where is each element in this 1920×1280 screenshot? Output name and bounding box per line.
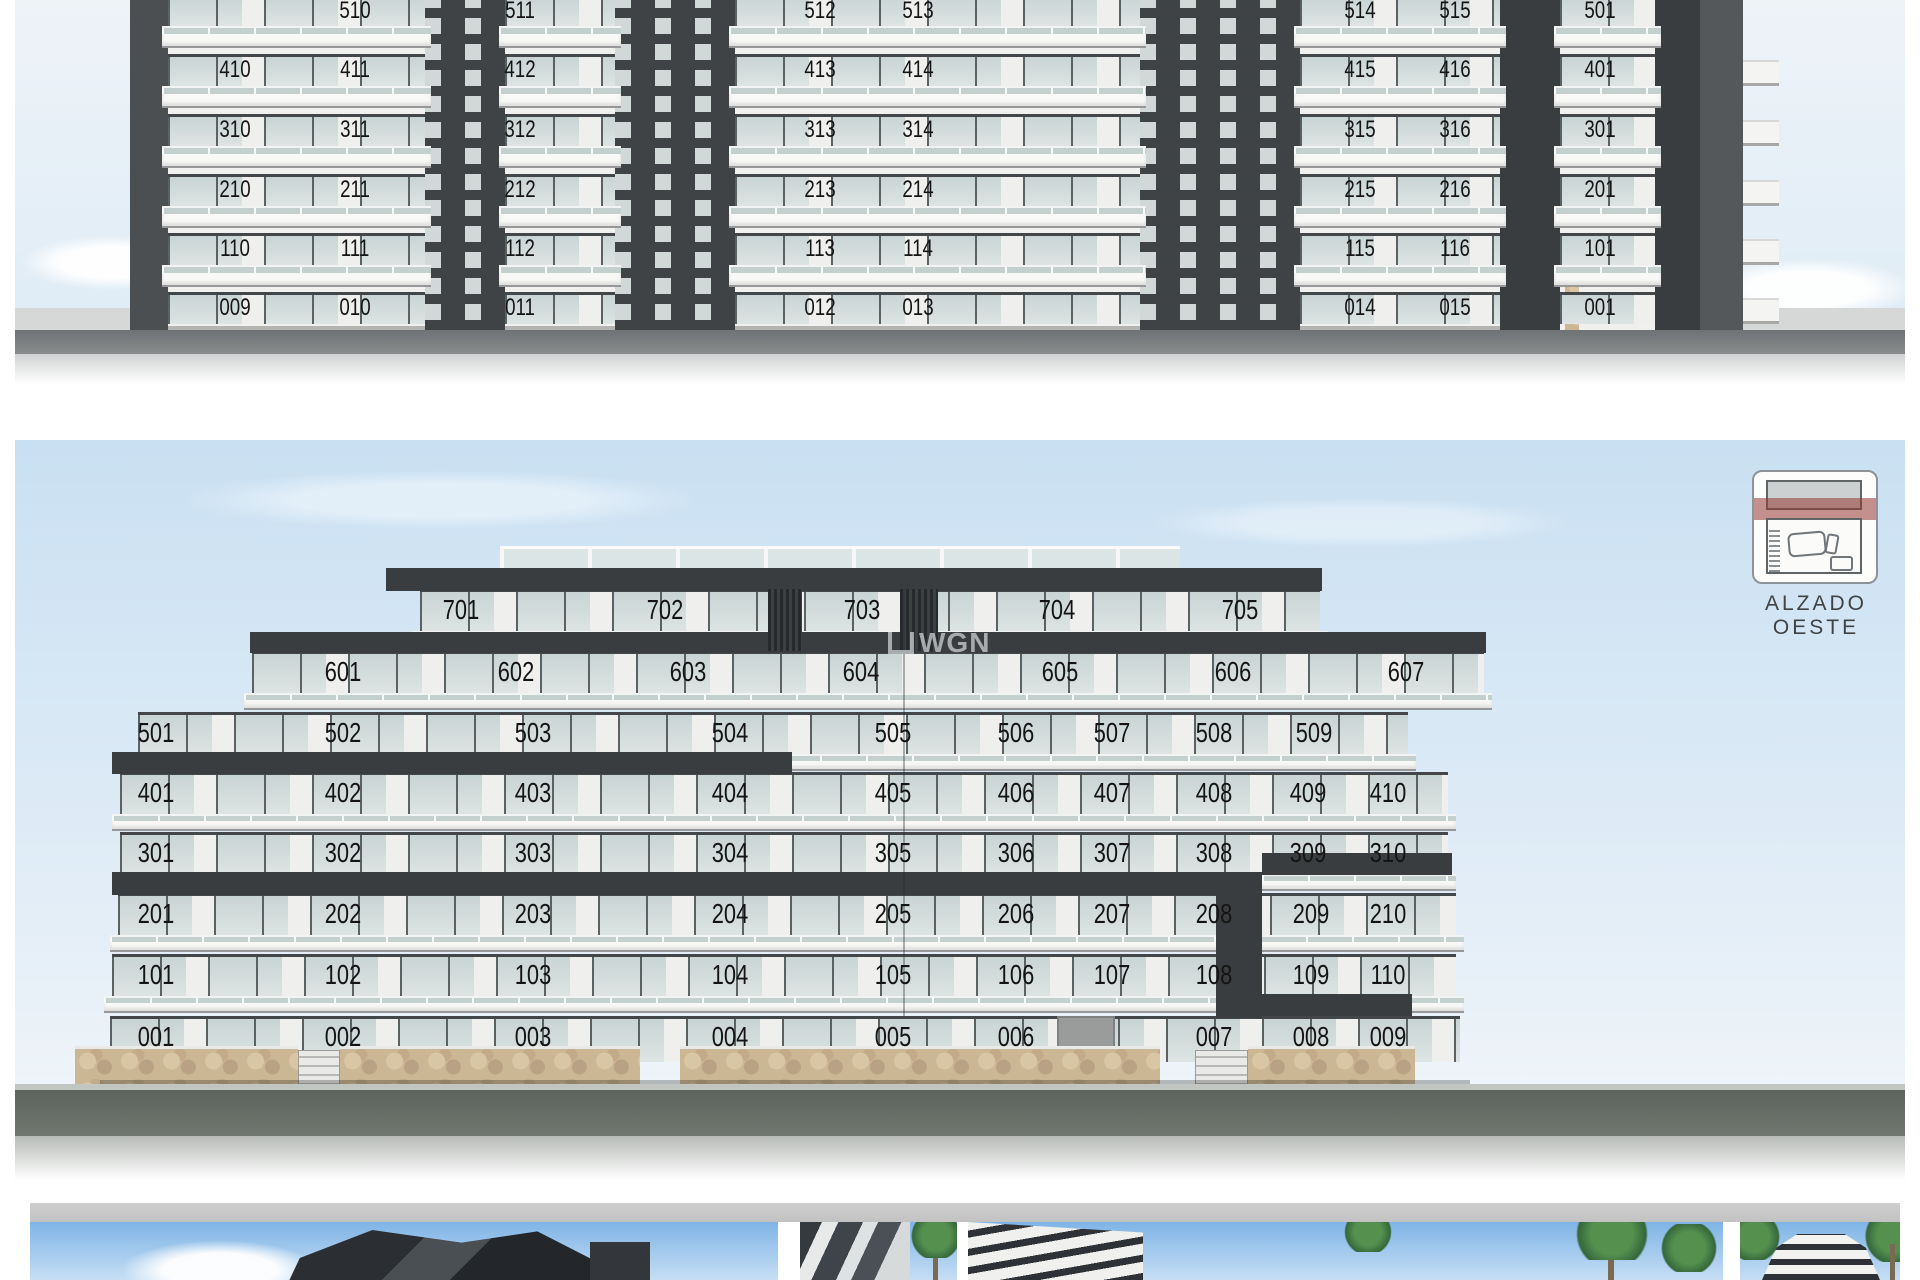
balcony-slab xyxy=(729,94,1146,108)
unit-label: 513 xyxy=(902,0,933,25)
balcony-slab xyxy=(162,154,431,168)
unit-label: 008 xyxy=(1293,1021,1329,1053)
window-band xyxy=(120,832,1448,874)
unit-label: 315 xyxy=(1344,116,1375,144)
balcony-slab xyxy=(729,34,1146,48)
unit-label: 216 xyxy=(1439,176,1470,204)
unit-label: 411 xyxy=(340,56,370,84)
unit-label: 702 xyxy=(647,594,683,626)
building-render-thumbnail-3[interactable] xyxy=(968,1222,1723,1280)
unit-label: 210 xyxy=(1370,898,1406,930)
window-band xyxy=(168,292,425,324)
unit-label: 004 xyxy=(712,1021,748,1053)
balcony-slab xyxy=(1554,273,1661,287)
balcony-slab xyxy=(1554,94,1661,108)
balcony-slab xyxy=(1294,34,1506,48)
unit-label: 101 xyxy=(138,959,174,991)
unit-label: 204 xyxy=(712,898,748,930)
window-band xyxy=(168,114,425,146)
road xyxy=(15,330,1905,354)
unit-label: 605 xyxy=(1042,656,1078,688)
balcony-slab xyxy=(112,821,1456,831)
unit-label: 006 xyxy=(998,1021,1034,1053)
unit-label: 503 xyxy=(515,717,551,749)
dark-band xyxy=(1216,994,1412,1016)
unit-label: 110 xyxy=(220,235,250,263)
balcony-rail xyxy=(729,206,1146,214)
side-balcony xyxy=(1743,120,1779,146)
window-band xyxy=(735,114,1140,146)
unit-label: 413 xyxy=(804,56,835,84)
unit-label: 012 xyxy=(804,294,835,322)
window-band xyxy=(735,54,1140,86)
balcony-rail xyxy=(1554,265,1661,273)
unit-label: 410 xyxy=(219,56,250,84)
unit-label: 301 xyxy=(1584,116,1615,144)
unit-label: 415 xyxy=(1344,56,1375,84)
unit-label: 515 xyxy=(1439,0,1470,25)
unit-label: 403 xyxy=(515,777,551,809)
unit-label: 604 xyxy=(843,656,879,688)
unit-label: 601 xyxy=(325,656,361,688)
unit-label: 410 xyxy=(1370,777,1406,809)
unit-label: 514 xyxy=(1344,0,1375,25)
balcony-slab xyxy=(1554,154,1661,168)
unit-label: 104 xyxy=(712,959,748,991)
unit-label: 310 xyxy=(219,116,250,144)
side-balcony xyxy=(1743,180,1779,206)
elevation-title: ALZADO OESTE xyxy=(1730,592,1902,640)
ground-fade xyxy=(15,1136,1905,1180)
balcony-rail xyxy=(1294,146,1506,154)
unit-label: 015 xyxy=(1439,294,1470,322)
unit-label: 110 xyxy=(1371,959,1406,991)
balcony-slab xyxy=(499,34,621,48)
unit-label: 407 xyxy=(1094,777,1130,809)
unit-label: 401 xyxy=(138,777,174,809)
unit-label: 301 xyxy=(138,837,174,869)
balcony-slab xyxy=(162,214,431,228)
balcony-rail xyxy=(244,693,1492,700)
unit-label: 607 xyxy=(1388,656,1424,688)
unit-label: 206 xyxy=(998,898,1034,930)
unit-label: 209 xyxy=(1293,898,1329,930)
unit-label: 114 xyxy=(903,235,933,263)
balcony-rail xyxy=(162,265,431,273)
stair-core xyxy=(1140,0,1300,330)
balcony-slab xyxy=(1294,94,1506,108)
unit-label: 504 xyxy=(712,717,748,749)
unit-label: 606 xyxy=(1215,656,1251,688)
balcony-rail xyxy=(729,86,1146,94)
elevation-highlight-band xyxy=(1754,498,1876,520)
louver-core xyxy=(768,589,802,651)
balcony-slab xyxy=(499,154,621,168)
unit-label: 310 xyxy=(1370,837,1406,869)
unit-label: 102 xyxy=(325,959,361,991)
balcony-rail xyxy=(1294,26,1506,34)
unit-label: 005 xyxy=(875,1021,911,1053)
unit-label: 001 xyxy=(1584,294,1615,322)
balcony-slab xyxy=(1294,273,1506,287)
unit-label: 115 xyxy=(1345,235,1375,263)
window-band xyxy=(168,0,425,26)
unit-label: 105 xyxy=(875,959,911,991)
unit-label: 705 xyxy=(1222,594,1258,626)
balcony-slab xyxy=(1294,154,1506,168)
unit-label: 404 xyxy=(712,777,748,809)
building-render-thumbnail-2[interactable] xyxy=(800,1222,957,1280)
unit-label: 207 xyxy=(1094,898,1130,930)
unit-label: 113 xyxy=(805,235,835,263)
unit-label: 101 xyxy=(1584,235,1615,263)
dark-edge xyxy=(1700,0,1743,330)
unit-label: 302 xyxy=(325,837,361,869)
unit-label: 103 xyxy=(515,959,551,991)
window-band xyxy=(120,772,1448,814)
unit-label: 412 xyxy=(504,56,535,84)
unit-label: 211 xyxy=(340,176,370,204)
unit-label: 401 xyxy=(1584,56,1615,84)
balcony-rail xyxy=(112,814,1456,821)
balcony-slab xyxy=(729,214,1146,228)
wgn-watermark: WGN xyxy=(888,627,990,659)
unit-label: 505 xyxy=(875,717,911,749)
unit-label: 307 xyxy=(1094,837,1130,869)
unit-label: 201 xyxy=(1584,176,1615,204)
unit-label: 409 xyxy=(1290,777,1326,809)
unit-label: 003 xyxy=(515,1021,551,1053)
site-plan-car-icon xyxy=(1830,556,1853,571)
site-plan-pool xyxy=(1787,530,1827,557)
unit-label: 508 xyxy=(1196,717,1232,749)
unit-label: 011 xyxy=(505,294,535,322)
balcony-rail xyxy=(499,206,621,214)
unit-label: 311 xyxy=(340,116,370,144)
unit-label: 202 xyxy=(325,898,361,930)
unit-label: 215 xyxy=(1344,176,1375,204)
site-plan-hatch xyxy=(1769,530,1780,572)
wgn-logo-icon xyxy=(888,632,914,654)
balcony-rail xyxy=(162,86,431,94)
unit-label: 308 xyxy=(1196,837,1232,869)
window-band xyxy=(735,0,1140,26)
unit-label: 303 xyxy=(515,837,551,869)
building-render-thumbnail-1[interactable] xyxy=(30,1222,778,1280)
unit-label: 414 xyxy=(902,56,933,84)
unit-label: 405 xyxy=(875,777,911,809)
site-plan-icon xyxy=(1752,470,1878,584)
window-band xyxy=(735,233,1140,265)
unit-label: 201 xyxy=(138,898,174,930)
balcony-rail xyxy=(1554,86,1661,94)
balcony-slab xyxy=(162,273,431,287)
unit-label: 502 xyxy=(325,717,361,749)
window-band xyxy=(168,54,425,86)
dark-band xyxy=(250,632,1486,653)
balcony-rail xyxy=(499,265,621,273)
balcony-rail xyxy=(162,206,431,214)
unit-label: 002 xyxy=(325,1021,361,1053)
unit-label: 203 xyxy=(515,898,551,930)
unit-label: 316 xyxy=(1439,116,1470,144)
unit-label: 112 xyxy=(505,235,535,263)
balcony-rail xyxy=(162,146,431,154)
balcony-slab xyxy=(1554,214,1661,228)
balcony-rail xyxy=(1554,206,1661,214)
balcony-rail xyxy=(499,146,621,154)
unit-label: 501 xyxy=(1584,0,1615,25)
unit-label: 306 xyxy=(998,837,1034,869)
balcony-rail xyxy=(729,265,1146,273)
balcony-rail xyxy=(1554,146,1661,154)
unit-label: 212 xyxy=(504,176,535,204)
ground-fade xyxy=(15,354,1905,384)
unit-label: 408 xyxy=(1196,777,1232,809)
unit-label: 703 xyxy=(844,594,880,626)
unit-label: 108 xyxy=(1196,959,1232,991)
balcony-rail xyxy=(1554,26,1661,34)
dark-band xyxy=(112,752,792,774)
side-balcony xyxy=(1743,239,1779,265)
balcony-slab xyxy=(1294,214,1506,228)
unit-label: 507 xyxy=(1094,717,1130,749)
cloud xyxy=(1150,498,1570,548)
unit-label: 013 xyxy=(902,294,933,322)
unit-label: 501 xyxy=(138,717,174,749)
unit-label: 205 xyxy=(875,898,911,930)
unit-label: 213 xyxy=(804,176,835,204)
window-band xyxy=(168,174,425,206)
window-band xyxy=(1300,233,1500,265)
balcony-slab xyxy=(729,273,1146,287)
unit-label: 010 xyxy=(339,294,370,322)
thumbnail-strip-bar xyxy=(30,1203,1900,1222)
unit-label: 305 xyxy=(875,837,911,869)
balcony-rail xyxy=(729,146,1146,154)
parapet-band xyxy=(386,568,1322,591)
balcony-rail xyxy=(499,86,621,94)
balcony-rail xyxy=(729,26,1146,34)
unit-label: 701 xyxy=(443,594,479,626)
unit-label: 506 xyxy=(998,717,1034,749)
side-balcony xyxy=(1743,60,1779,86)
unit-label: 512 xyxy=(804,0,835,25)
balcony-rail xyxy=(499,26,621,34)
unit-label: 510 xyxy=(339,0,370,25)
unit-label: 111 xyxy=(341,235,369,263)
window-band xyxy=(735,174,1140,206)
dark-core xyxy=(1655,0,1700,330)
unit-label: 509 xyxy=(1296,717,1332,749)
balcony-slab xyxy=(729,154,1146,168)
cloud xyxy=(180,470,700,530)
balcony-slab xyxy=(162,34,431,48)
building-render-thumbnail-4[interactable] xyxy=(1740,1222,1900,1280)
watermark-text: WGN xyxy=(919,627,990,659)
unit-label: 312 xyxy=(504,116,535,144)
balcony-slab xyxy=(244,700,1492,710)
unit-label: 402 xyxy=(325,777,361,809)
unit-label: 009 xyxy=(1370,1021,1406,1053)
balcony-rail xyxy=(162,26,431,34)
dark-band xyxy=(112,872,1216,895)
unit-label: 214 xyxy=(902,176,933,204)
unit-label: 107 xyxy=(1094,959,1130,991)
balcony-slab xyxy=(499,273,621,287)
balcony-slab xyxy=(499,94,621,108)
balcony-slab xyxy=(162,94,431,108)
unit-label: 704 xyxy=(1039,594,1075,626)
unit-label: 106 xyxy=(998,959,1034,991)
unit-label: 009 xyxy=(219,294,250,322)
elevation-sheet: 5105115125135145155014104114124134144154… xyxy=(0,0,1920,1280)
stair-core xyxy=(425,0,505,330)
balcony-slab xyxy=(1554,34,1661,48)
unit-label: 603 xyxy=(670,656,706,688)
window-band xyxy=(735,292,1140,324)
unit-label: 014 xyxy=(1344,294,1375,322)
stair-core xyxy=(615,0,735,330)
balcony-rail xyxy=(1294,206,1506,214)
side-balcony xyxy=(1743,298,1779,324)
unit-label: 313 xyxy=(804,116,835,144)
dark-core xyxy=(1500,0,1560,330)
balcony-slab xyxy=(499,214,621,228)
unit-label: 116 xyxy=(1440,235,1470,263)
unit-label: 208 xyxy=(1196,898,1232,930)
unit-label: 309 xyxy=(1290,837,1326,869)
window-band xyxy=(168,233,425,265)
unit-label: 001 xyxy=(138,1021,174,1053)
unit-label: 416 xyxy=(1439,56,1470,84)
ground xyxy=(15,1090,1905,1136)
unit-label: 511 xyxy=(505,0,535,25)
unit-label: 406 xyxy=(998,777,1034,809)
balcony-rail xyxy=(1294,86,1506,94)
unit-label: 304 xyxy=(712,837,748,869)
unit-label: 602 xyxy=(498,656,534,688)
balcony-rail xyxy=(1294,265,1506,273)
unit-label: 109 xyxy=(1293,959,1329,991)
unit-label: 007 xyxy=(1196,1021,1232,1053)
unit-label: 314 xyxy=(902,116,933,144)
unit-label: 210 xyxy=(219,176,250,204)
